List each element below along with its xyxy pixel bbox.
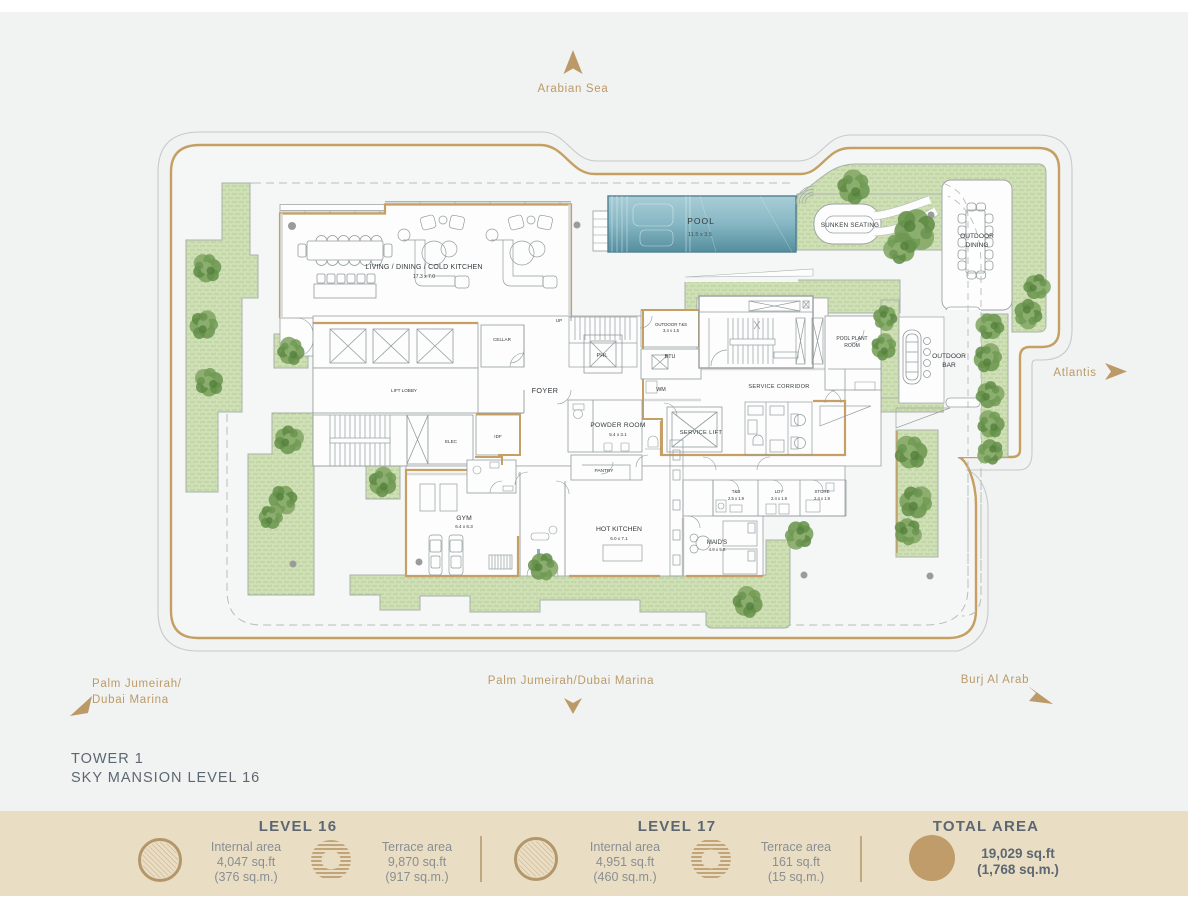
svg-text:T&B: T&B <box>732 489 741 494</box>
svg-text:Palm Jumeirah/: Palm Jumeirah/ <box>92 678 182 690</box>
svg-text:POOL PLANT: POOL PLANT <box>836 336 867 342</box>
svg-text:4,951 sq.ft: 4,951 sq.ft <box>596 855 655 869</box>
svg-text:3.4 x 1.5: 3.4 x 1.5 <box>663 328 680 333</box>
svg-text:6.4 x 6.3: 6.4 x 6.3 <box>455 524 473 529</box>
svg-text:BAR: BAR <box>942 362 956 369</box>
svg-text:SERVICE CORRIDOR: SERVICE CORRIDOR <box>748 384 809 390</box>
svg-text:(917 sq.m.): (917 sq.m.) <box>385 870 448 884</box>
svg-text:(15 sq.m.): (15 sq.m.) <box>768 870 824 884</box>
svg-text:5.4 x 3.1: 5.4 x 3.1 <box>609 432 627 437</box>
svg-text:PHL: PHL <box>597 353 608 359</box>
svg-text:UP: UP <box>556 318 562 323</box>
svg-text:Burj Al Arab: Burj Al Arab <box>961 674 1030 686</box>
svg-text:SUNKEN SEATING: SUNKEN SEATING <box>821 222 879 229</box>
svg-text:WM: WM <box>656 387 666 393</box>
svg-text:LIFT LOBBY: LIFT LOBBY <box>391 388 417 393</box>
svg-text:GYM: GYM <box>456 515 472 522</box>
svg-text:9,870 sq.ft: 9,870 sq.ft <box>388 855 447 869</box>
svg-text:LEVEL 17: LEVEL 17 <box>638 818 717 835</box>
svg-text:SERVICE LIFT: SERVICE LIFT <box>680 430 723 436</box>
svg-text:FOYER: FOYER <box>532 386 559 395</box>
svg-text:19,029 sq.ft: 19,029 sq.ft <box>981 846 1055 861</box>
svg-text:(376 sq.m.): (376 sq.m.) <box>214 870 277 884</box>
svg-text:ELEC: ELEC <box>445 439 458 444</box>
svg-text:TOTAL AREA: TOTAL AREA <box>933 818 1039 835</box>
svg-text:BTU: BTU <box>665 354 676 360</box>
svg-text:CELLAR: CELLAR <box>493 337 512 342</box>
svg-text:LDY: LDY <box>775 489 784 494</box>
svg-text:TOWER 1: TOWER 1 <box>71 751 144 767</box>
svg-text:ROOM: ROOM <box>844 343 860 349</box>
svg-text:17.3 x 7.0: 17.3 x 7.0 <box>413 274 435 280</box>
svg-text:IDF: IDF <box>494 434 502 439</box>
svg-text:OUTDOOR: OUTDOOR <box>960 233 994 240</box>
svg-text:6.0 x 7.1: 6.0 x 7.1 <box>610 536 628 541</box>
svg-text:STORE: STORE <box>814 489 829 494</box>
svg-text:OUTDOOR T&S: OUTDOOR T&S <box>655 322 687 327</box>
svg-text:2.4 x 1.9: 2.4 x 1.9 <box>814 496 831 501</box>
svg-text:Terrace area: Terrace area <box>761 840 831 854</box>
svg-text:OUTDOOR: OUTDOOR <box>932 353 966 360</box>
svg-text:MAID'S: MAID'S <box>707 540 727 546</box>
svg-text:4.9 x 5.5: 4.9 x 5.5 <box>709 547 726 552</box>
svg-text:Terrace area: Terrace area <box>382 840 452 854</box>
svg-text:(1,768 sq.m.): (1,768 sq.m.) <box>977 862 1059 877</box>
svg-text:POWDER ROOM: POWDER ROOM <box>590 422 645 429</box>
svg-text:(460 sq.m.): (460 sq.m.) <box>593 870 656 884</box>
svg-text:LIVING / DINING / COLD KITCHEN: LIVING / DINING / COLD KITCHEN <box>365 264 482 271</box>
svg-text:LEVEL 16: LEVEL 16 <box>259 818 338 835</box>
svg-text:4,047 sq.ft: 4,047 sq.ft <box>217 855 276 869</box>
svg-text:Dubai Marina: Dubai Marina <box>92 694 169 706</box>
svg-text:DINING: DINING <box>965 242 988 249</box>
svg-text:Atlantis: Atlantis <box>1053 367 1096 379</box>
svg-text:Internal area: Internal area <box>590 840 660 854</box>
svg-text:2.5 x 1.9: 2.5 x 1.9 <box>728 496 745 501</box>
svg-text:HOT KITCHEN: HOT KITCHEN <box>596 526 642 533</box>
svg-text:POOL: POOL <box>687 216 715 226</box>
svg-text:Internal area: Internal area <box>211 840 281 854</box>
svg-text:Palm Jumeirah/Dubai Marina: Palm Jumeirah/Dubai Marina <box>488 675 654 687</box>
svg-text:2.4 x 1.9: 2.4 x 1.9 <box>771 496 788 501</box>
svg-text:SKY MANSION LEVEL 16: SKY MANSION LEVEL 16 <box>71 770 260 786</box>
svg-text:Arabian Sea: Arabian Sea <box>538 83 609 95</box>
svg-text:161 sq.ft: 161 sq.ft <box>772 855 820 869</box>
svg-text:11.5 x 3.5: 11.5 x 3.5 <box>688 232 712 238</box>
svg-text:PANTRY: PANTRY <box>594 468 614 474</box>
